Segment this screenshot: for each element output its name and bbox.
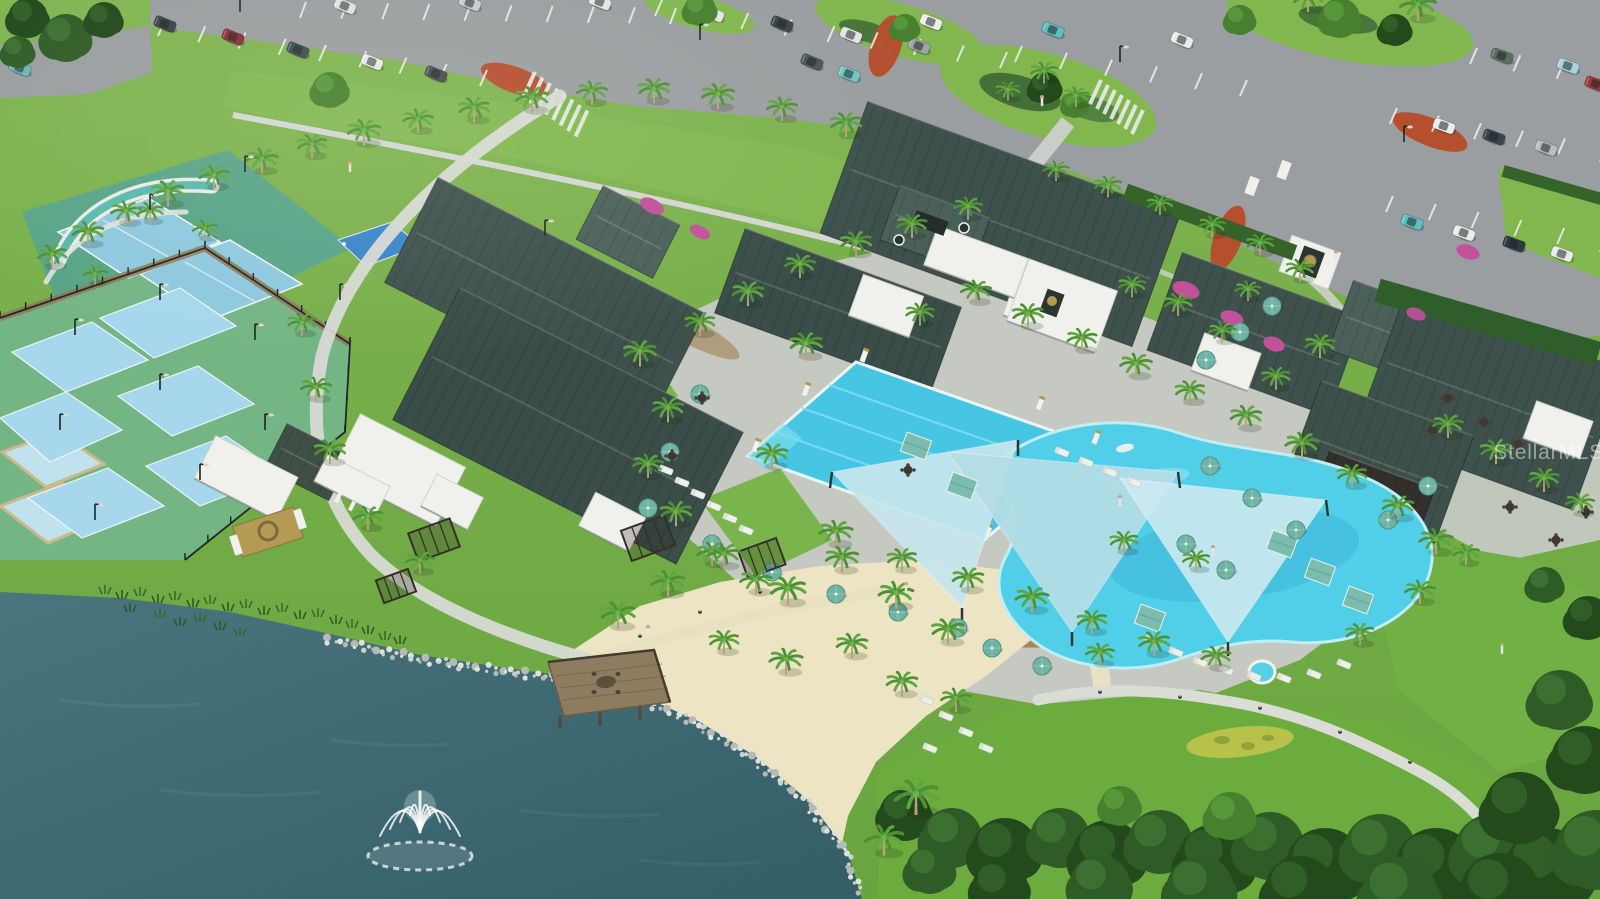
riprap-rock — [848, 874, 853, 879]
riprap-rock — [335, 640, 338, 643]
riprap-rock — [485, 670, 488, 673]
path-bollard — [1098, 690, 1102, 694]
riprap-rock — [848, 854, 853, 859]
riprap-rock — [831, 837, 834, 840]
riprap-rock — [523, 675, 528, 680]
scene-layers — [0, 0, 1600, 899]
watermark-text: StellarMLS — [1493, 441, 1600, 464]
riprap-rock — [788, 787, 796, 795]
dock-chair — [616, 672, 621, 676]
flower-island-plants — [1262, 735, 1274, 741]
riprap-rock — [541, 675, 546, 680]
riprap-rock — [843, 848, 846, 851]
riprap-rock — [793, 793, 798, 798]
riprap-rock — [359, 640, 365, 646]
riprap-rock — [516, 671, 520, 675]
riprap-rock — [761, 760, 767, 766]
porthole-window — [959, 223, 969, 233]
riprap-rock — [717, 737, 720, 740]
riprap-rock — [449, 658, 457, 666]
riprap-rock — [324, 640, 329, 645]
riprap-rock — [832, 830, 838, 836]
riprap-rock — [400, 648, 408, 656]
riprap-rock — [855, 879, 861, 885]
riprap-rock — [408, 657, 413, 662]
dock-chair — [592, 672, 597, 676]
riprap-rock — [466, 662, 470, 666]
riprap-rock — [448, 665, 451, 668]
path-bollard — [638, 634, 642, 638]
riprap-rock — [386, 646, 392, 652]
riprap-rock — [737, 745, 743, 751]
riprap-rock — [748, 752, 756, 760]
riprap-rock — [456, 666, 461, 671]
riprap-rock — [343, 642, 348, 647]
riprap-rock — [421, 654, 429, 662]
riprap-rock — [659, 708, 662, 711]
riprap-rock — [514, 674, 517, 677]
riprap-rock — [824, 828, 829, 833]
riprap-rock — [724, 741, 729, 746]
riprap-rock — [693, 721, 696, 724]
riprap-rock — [856, 890, 861, 895]
riprap-rock — [763, 771, 768, 776]
riprap-rock — [858, 886, 862, 890]
path-bollard — [1338, 730, 1342, 734]
riprap-rock — [466, 665, 469, 668]
riprap-rock — [444, 657, 448, 661]
riprap-rock — [802, 797, 805, 800]
riprap-rock — [521, 667, 529, 675]
riprap-rock — [382, 653, 385, 656]
riprap-rock — [684, 713, 688, 717]
riprap-rock — [778, 780, 783, 785]
riprap-rock — [853, 881, 856, 884]
flower-island-plants — [1214, 736, 1230, 744]
riprap-rock — [475, 667, 480, 672]
riprap-rock — [740, 752, 745, 757]
riprap-rock — [486, 662, 492, 668]
riprap-rock — [418, 660, 421, 663]
riprap-rock — [666, 711, 671, 716]
riprap-rock — [733, 748, 736, 751]
riprap-rock — [708, 735, 713, 740]
riprap-rock — [372, 646, 380, 654]
logo-medallion — [1047, 296, 1057, 306]
scene-svg: StellarMLS — [0, 0, 1600, 899]
riprap-rock — [437, 661, 440, 664]
dock-chair — [592, 690, 597, 694]
riprap-rock — [812, 817, 817, 822]
riprap-rock — [345, 638, 349, 642]
path-bollard — [758, 590, 762, 594]
riprap-rock — [814, 810, 820, 816]
riprap-rock — [683, 720, 688, 725]
riprap-rock — [367, 645, 371, 649]
riprap-rock — [703, 725, 707, 729]
riprap-rock — [508, 666, 514, 672]
riprap-rock — [784, 781, 788, 785]
riprap-rock — [337, 638, 343, 644]
riprap-rock — [839, 841, 847, 849]
riprap-rock — [323, 634, 331, 642]
riprap-rock — [353, 646, 356, 649]
riprap-rock — [771, 775, 774, 778]
path-bollard — [1258, 706, 1262, 710]
riprap-rock — [701, 731, 704, 734]
porthole-window — [894, 235, 904, 245]
riprap-rock — [494, 666, 498, 670]
riprap-rock — [390, 655, 395, 660]
riprap-rock — [767, 769, 771, 773]
flower-island-plants — [1241, 742, 1255, 750]
riprap-rock — [361, 648, 366, 653]
riprap-rock — [504, 670, 507, 673]
riprap-rock — [493, 671, 498, 676]
path-bollard — [698, 610, 702, 614]
dock-chair — [616, 690, 621, 694]
riprap-rock — [847, 867, 855, 875]
riprap-rock — [535, 671, 541, 677]
riprap-rock — [720, 731, 726, 737]
riprap-rock — [744, 752, 748, 756]
riprap-rock — [400, 655, 403, 658]
riprap-rock — [649, 706, 654, 711]
riprap-rock — [756, 766, 759, 769]
path-bollard — [1178, 695, 1182, 699]
riprap-rock — [427, 662, 432, 667]
riprap-rock — [819, 822, 822, 825]
riprap-rock — [533, 674, 536, 677]
path-bollard — [1408, 760, 1412, 764]
aerial-rendering: StellarMLS — [0, 0, 1600, 899]
riprap-rock — [676, 716, 679, 719]
riprap-rock — [807, 811, 810, 814]
riprap-rock — [807, 799, 811, 803]
riprap-rock — [755, 758, 760, 763]
riprap-rock — [394, 651, 398, 655]
